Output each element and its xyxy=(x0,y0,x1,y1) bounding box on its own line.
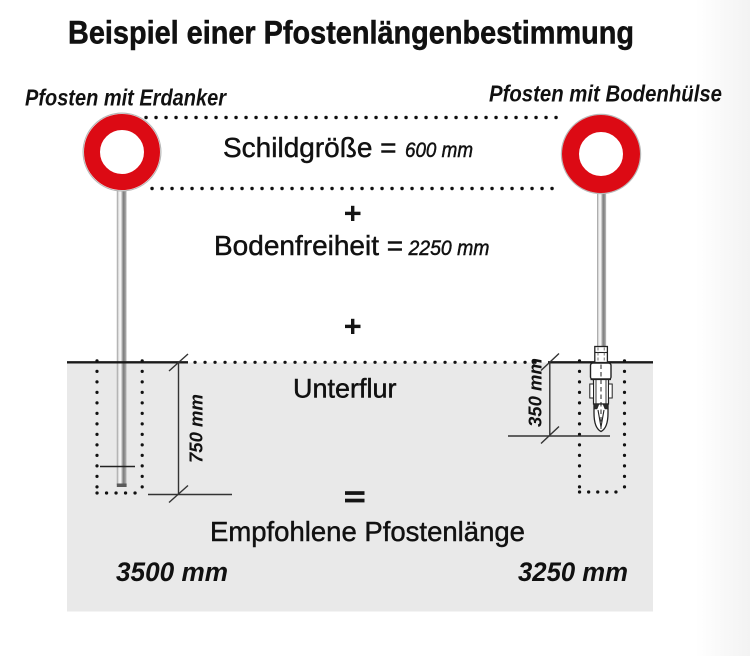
svg-text:750 mm: 750 mm xyxy=(186,394,207,463)
svg-text:Empfohlene Pfostenlänge: Empfohlene Pfostenlänge xyxy=(210,516,525,547)
svg-text:600 mm: 600 mm xyxy=(405,138,473,162)
svg-text:3500 mm: 3500 mm xyxy=(116,557,228,587)
svg-text:Pfosten mit Erdanker: Pfosten mit Erdanker xyxy=(25,85,227,111)
svg-text:Unterflur: Unterflur xyxy=(293,374,397,404)
svg-text:Bodenfreiheit =: Bodenfreiheit = xyxy=(214,230,403,261)
svg-text:Pfosten mit Bodenhülse: Pfosten mit Bodenhülse xyxy=(489,81,722,107)
svg-text:Beispiel einer Pfostenlängenbe: Beispiel einer Pfostenlängenbestimmung xyxy=(68,15,634,51)
svg-text:3250 mm: 3250 mm xyxy=(518,557,628,587)
svg-text:Schildgröße =: Schildgröße = xyxy=(223,132,397,163)
svg-text:350 mm: 350 mm xyxy=(525,358,546,427)
svg-text:2250 mm: 2250 mm xyxy=(408,236,490,260)
